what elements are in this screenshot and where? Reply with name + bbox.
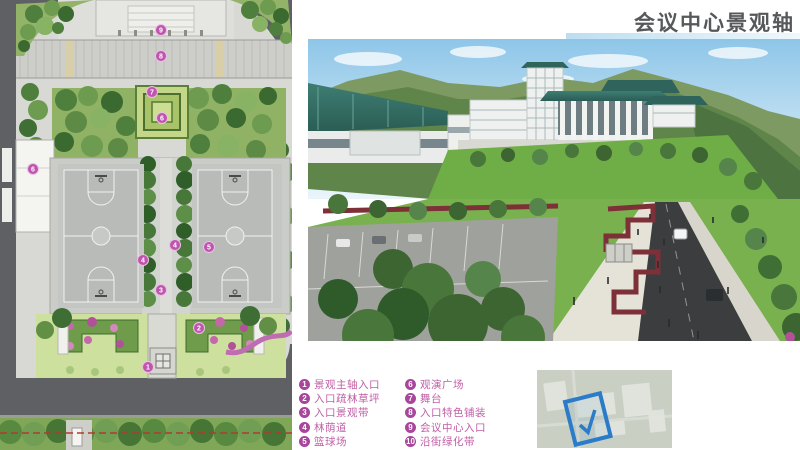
street-green-belt	[0, 418, 292, 450]
legend-item: 3入口景观带	[299, 406, 380, 420]
midrise-block	[470, 100, 527, 140]
plaza-grid-square	[606, 244, 632, 262]
entrance-garden	[36, 306, 291, 378]
basketball-court-right	[192, 164, 282, 308]
white-van	[674, 229, 687, 239]
curb-line	[0, 415, 292, 418]
plan-marker: 1	[143, 362, 154, 373]
entrance-plaza	[58, 0, 234, 40]
legend-number-badge: 3	[299, 407, 310, 418]
svg-text:8: 8	[159, 54, 163, 61]
key-map	[537, 370, 672, 448]
dark-car	[706, 289, 723, 301]
entrance-pavilion	[150, 348, 176, 374]
legend-label: 观演广场	[420, 377, 464, 392]
svg-text:4: 4	[141, 258, 145, 265]
legend-item: 10沿街绿化带	[405, 435, 486, 449]
legend-column-1: 1景观主轴入口 2入口疏林草坪 3入口景观带 4林荫道 5篮球场	[299, 377, 380, 449]
legend-label: 入口景观带	[314, 405, 369, 420]
plan-marker: 4	[138, 255, 149, 266]
svg-text:3: 3	[159, 288, 163, 295]
special-paving-band	[16, 40, 292, 78]
legend-label: 会议中心入口	[420, 420, 486, 435]
road-stall	[2, 148, 12, 182]
legend-number-badge: 8	[405, 407, 416, 418]
legend-label: 景观主轴入口	[314, 377, 380, 392]
plan-marker: 5	[204, 242, 215, 253]
legend-label: 篮球场	[314, 434, 347, 449]
legend-label: 入口疏林草坪	[314, 391, 380, 406]
legend-item: 1景观主轴入口	[299, 377, 380, 391]
legend-label: 舞台	[420, 391, 442, 406]
small-vehicle	[72, 428, 82, 446]
svg-text:6: 6	[160, 116, 164, 123]
svg-text:2: 2	[197, 326, 201, 333]
legend-item: 7舞台	[405, 391, 486, 405]
side-building	[16, 140, 54, 232]
svg-text:9: 9	[159, 28, 163, 35]
svg-text:5: 5	[207, 245, 211, 252]
plan-marker: 4	[170, 240, 181, 251]
plan-marker: 9	[156, 25, 167, 36]
perspective-render	[308, 39, 800, 341]
legend-item: 5篮球场	[299, 435, 380, 449]
legend-label: 林荫道	[314, 420, 347, 435]
plan-marker: 2	[194, 323, 205, 334]
site-plan-panel: 9 8 7 6 6 5 4 4 3 2 1	[0, 0, 292, 450]
plan-marker: 6	[157, 113, 168, 124]
legend-item: 4林荫道	[299, 420, 380, 434]
legend-number-badge: 6	[405, 379, 416, 390]
legend-number-badge: 10	[405, 436, 416, 447]
svg-text:6: 6	[31, 167, 35, 174]
perspective-render-panel	[308, 39, 800, 341]
location-highlight	[565, 393, 611, 444]
plan-marker: 8	[156, 51, 167, 62]
road-stall	[2, 188, 12, 222]
legend-item: 2入口疏林草坪	[299, 391, 380, 405]
svg-text:7: 7	[150, 90, 154, 97]
legend-item: 9会议中心入口	[405, 420, 486, 434]
legend-number-badge: 7	[405, 393, 416, 404]
basketball-court-left	[58, 164, 144, 308]
legend-label: 入口特色铺装	[420, 405, 486, 420]
legend-item: 8入口特色铺装	[405, 406, 486, 420]
svg-text:4: 4	[173, 243, 177, 250]
plan-marker: 7	[147, 87, 158, 98]
legend-column-2: 6观演广场 7舞台 8入口特色铺装 9会议中心入口 10沿街绿化带	[405, 377, 486, 449]
legend-number-badge: 4	[299, 422, 310, 433]
legend-number-badge: 5	[299, 436, 310, 447]
plan-marker: 3	[156, 285, 167, 296]
legend-number-badge: 1	[299, 379, 310, 390]
site-plan-drawing: 9 8 7 6 6 5 4 4 3 2 1	[0, 0, 292, 450]
key-map-drawing	[537, 370, 672, 448]
legend-label: 沿街绿化带	[420, 434, 475, 449]
plan-marker: 6	[28, 164, 39, 175]
svg-text:1: 1	[146, 365, 150, 372]
legend-number-badge: 2	[299, 393, 310, 404]
legend-number-badge: 9	[405, 422, 416, 433]
legend-item: 6观演广场	[405, 377, 486, 391]
